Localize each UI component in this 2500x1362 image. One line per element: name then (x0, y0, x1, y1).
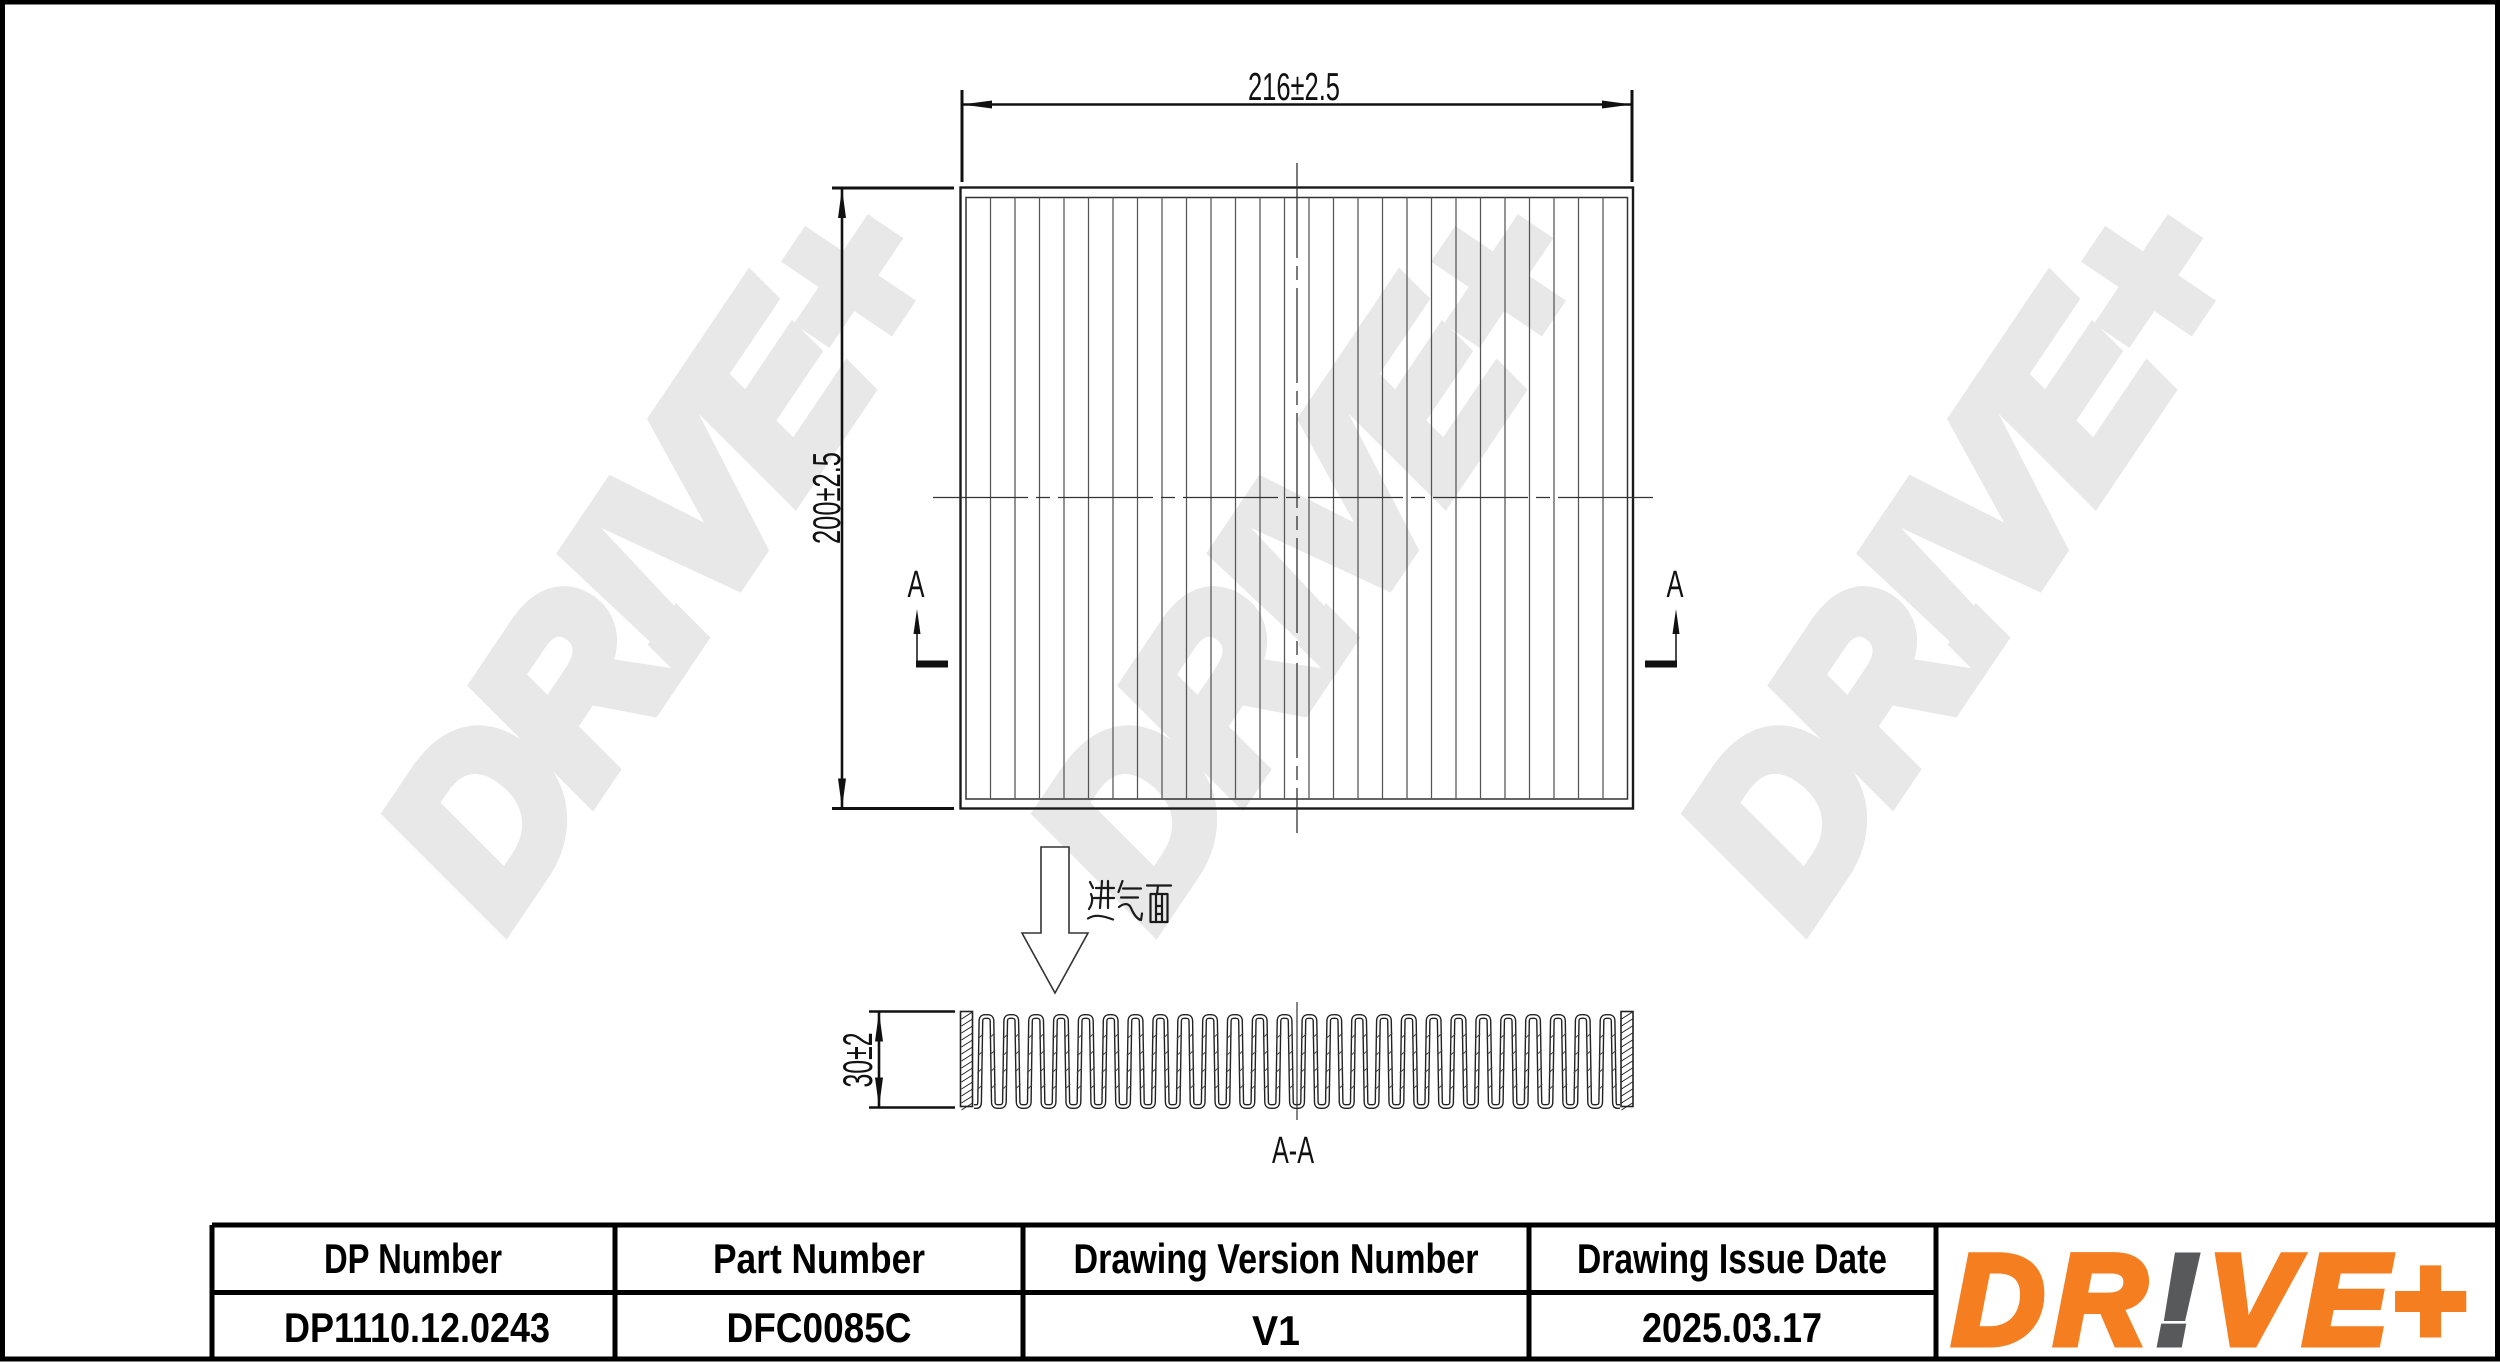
svg-text:A-A: A-A (1272, 1130, 1314, 1172)
svg-text:30±2: 30±2 (834, 1033, 881, 1088)
svg-text:Drawing Version Number: Drawing Version Number (1074, 1235, 1479, 1282)
svg-text:216±2.5: 216±2.5 (1248, 66, 1340, 109)
svg-text:A: A (1667, 564, 1684, 606)
svg-text:2025.03.17: 2025.03.17 (1642, 1304, 1822, 1351)
svg-text:A: A (908, 564, 925, 606)
svg-text:Drawing Issue Date: Drawing Issue Date (1577, 1235, 1887, 1282)
svg-text:Part Number: Part Number (713, 1235, 925, 1282)
svg-text:200±2.5: 200±2.5 (806, 452, 849, 544)
svg-text:DFC0085C: DFC0085C (727, 1304, 912, 1351)
svg-text:DR!VE+: DR!VE+ (1952, 1229, 2475, 1362)
svg-text:V1: V1 (1252, 1307, 1300, 1354)
svg-text:DP Number: DP Number (324, 1235, 502, 1282)
svg-text:DP1110.12.0243: DP1110.12.0243 (284, 1304, 550, 1351)
svg-text:DR!VE+: DR!VE+ (333, 161, 984, 957)
svg-text:DR!VE+: DR!VE+ (1633, 161, 2284, 957)
